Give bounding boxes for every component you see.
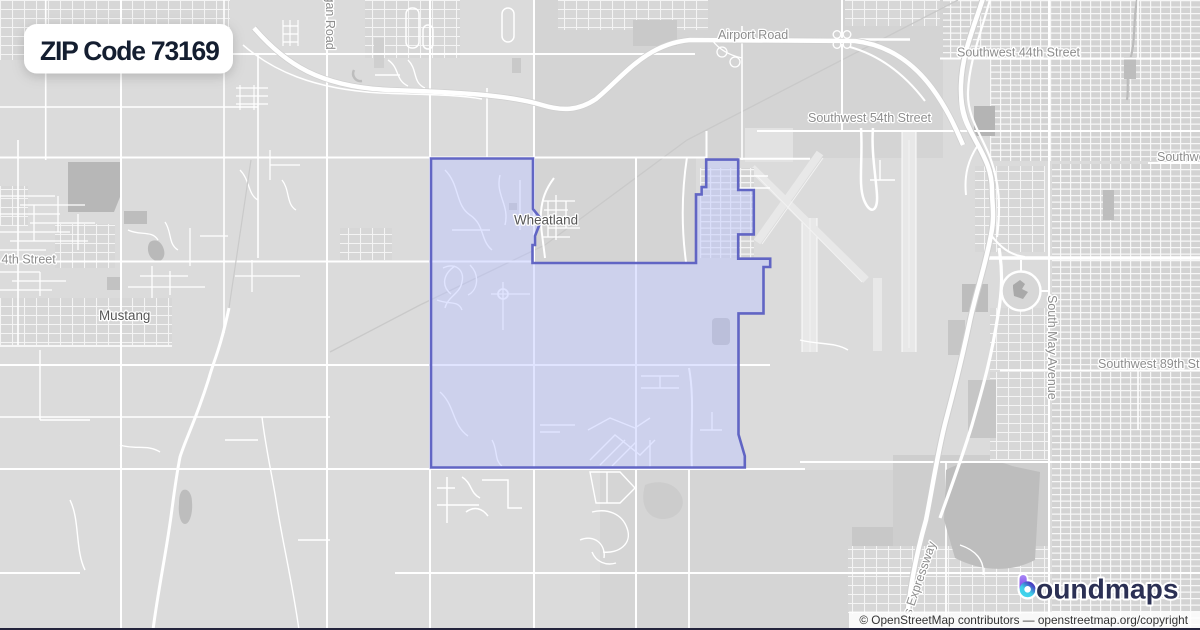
svg-text:© OpenStreetMap contributors —: © OpenStreetMap contributors — openstree… xyxy=(859,613,1188,627)
svg-text:Morgan Road: Morgan Road xyxy=(323,0,337,50)
svg-text:Wheatland: Wheatland xyxy=(514,213,578,228)
svg-text:Southwest 44th Street: Southwest 44th Street xyxy=(957,46,1081,60)
svg-text:ZIP Code 73169: ZIP Code 73169 xyxy=(40,36,219,66)
svg-text:Mustang: Mustang xyxy=(99,308,150,323)
svg-text:Southwest 5: Southwest 5 xyxy=(1157,150,1200,164)
svg-text:Airport Road: Airport Road xyxy=(718,28,788,42)
svg-text:oundmaps: oundmaps xyxy=(1036,573,1179,605)
svg-text:South May Avenue: South May Avenue xyxy=(1045,295,1059,400)
svg-text:4th Street: 4th Street xyxy=(2,253,57,267)
svg-text:Southwest 54th Street: Southwest 54th Street xyxy=(808,111,932,125)
svg-text:Southwest 89th Stre: Southwest 89th Stre xyxy=(1098,357,1200,371)
